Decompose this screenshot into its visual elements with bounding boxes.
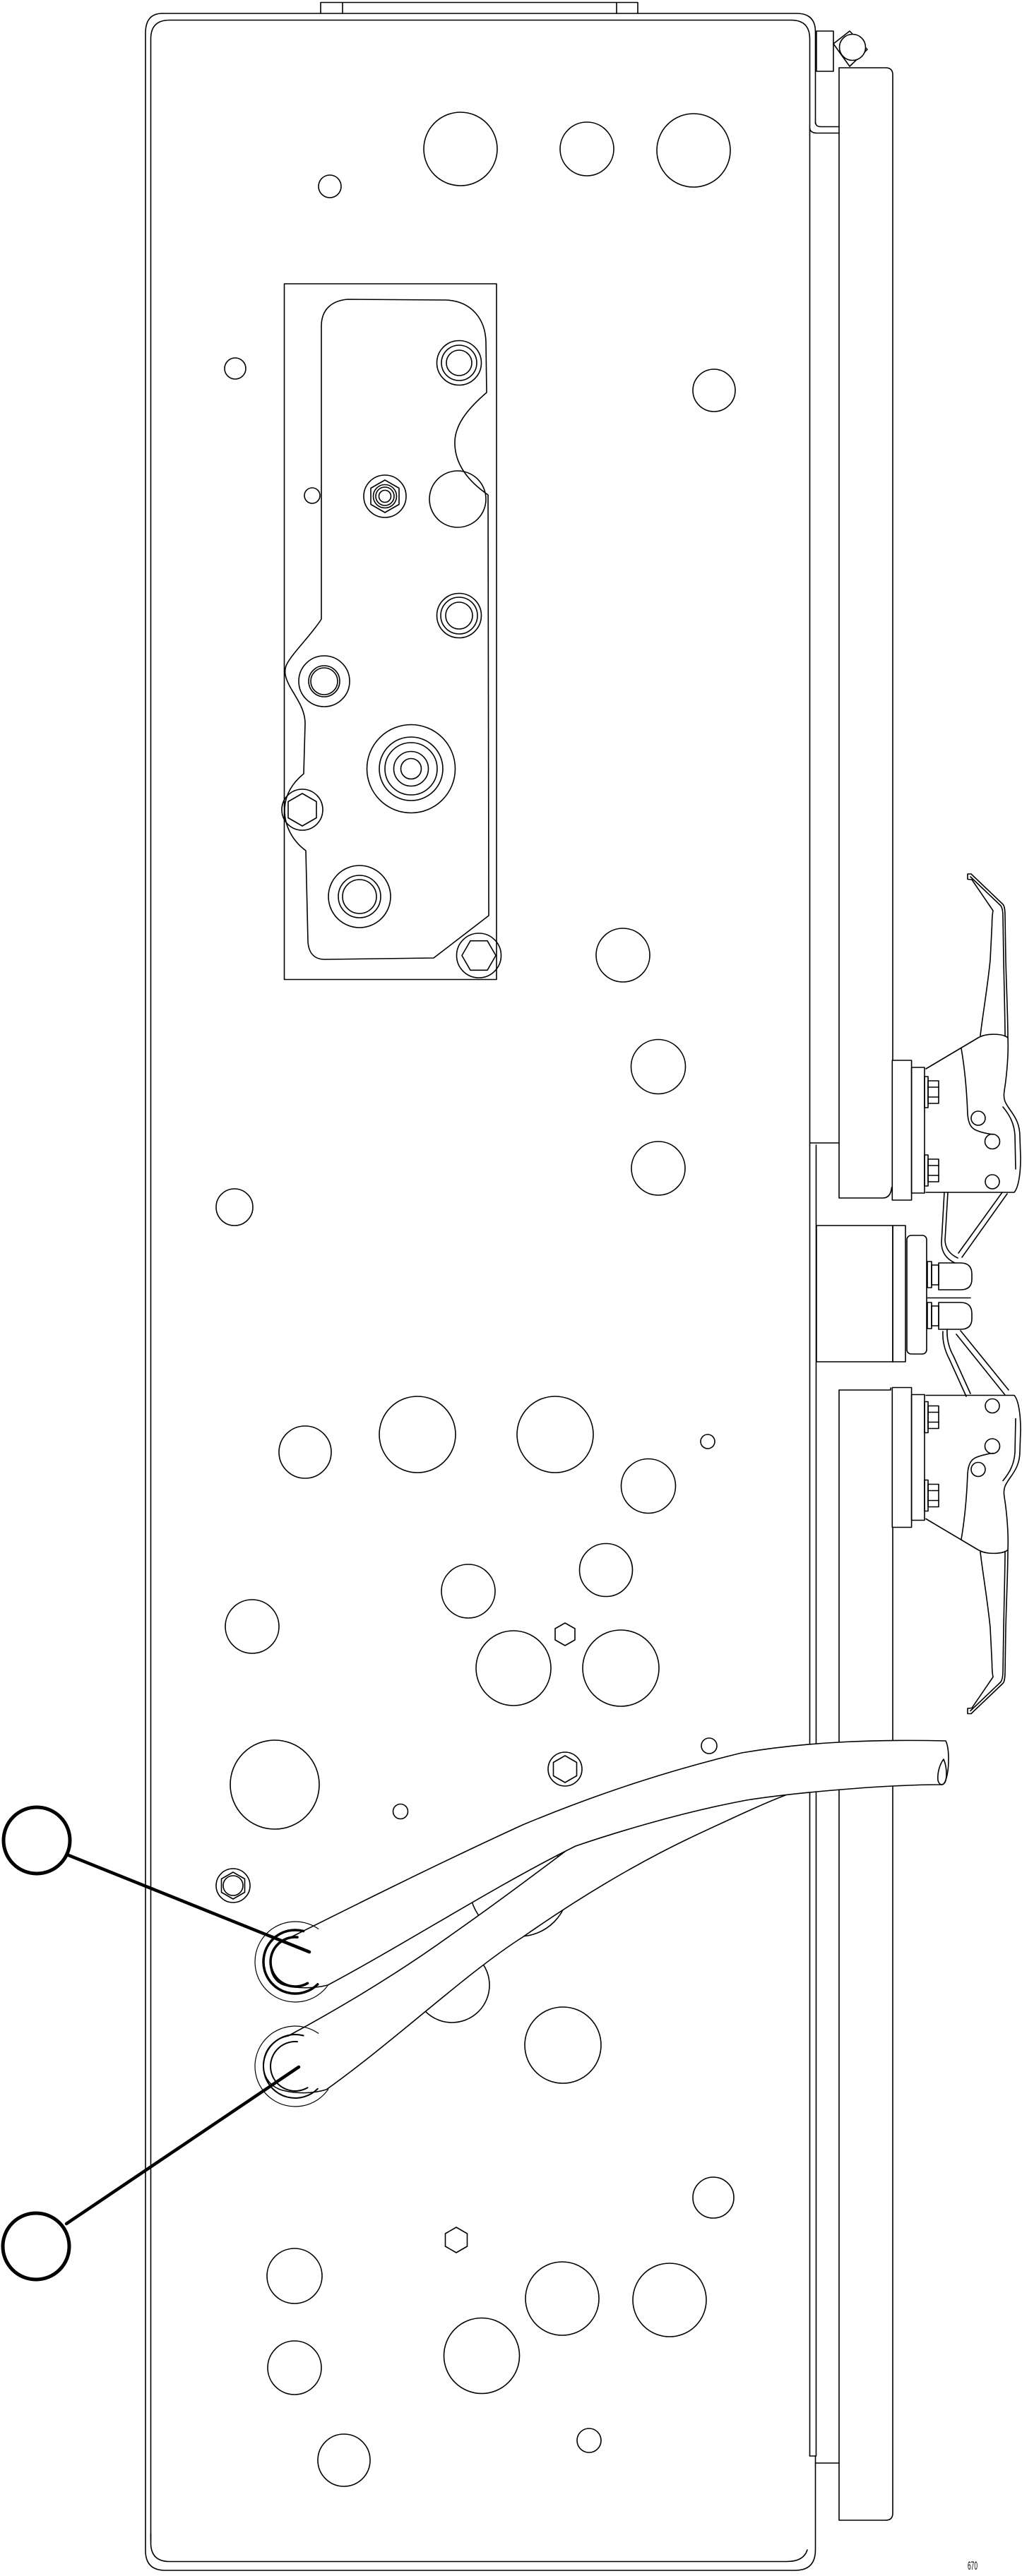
svg-text:670: 670 (968, 2559, 978, 2572)
